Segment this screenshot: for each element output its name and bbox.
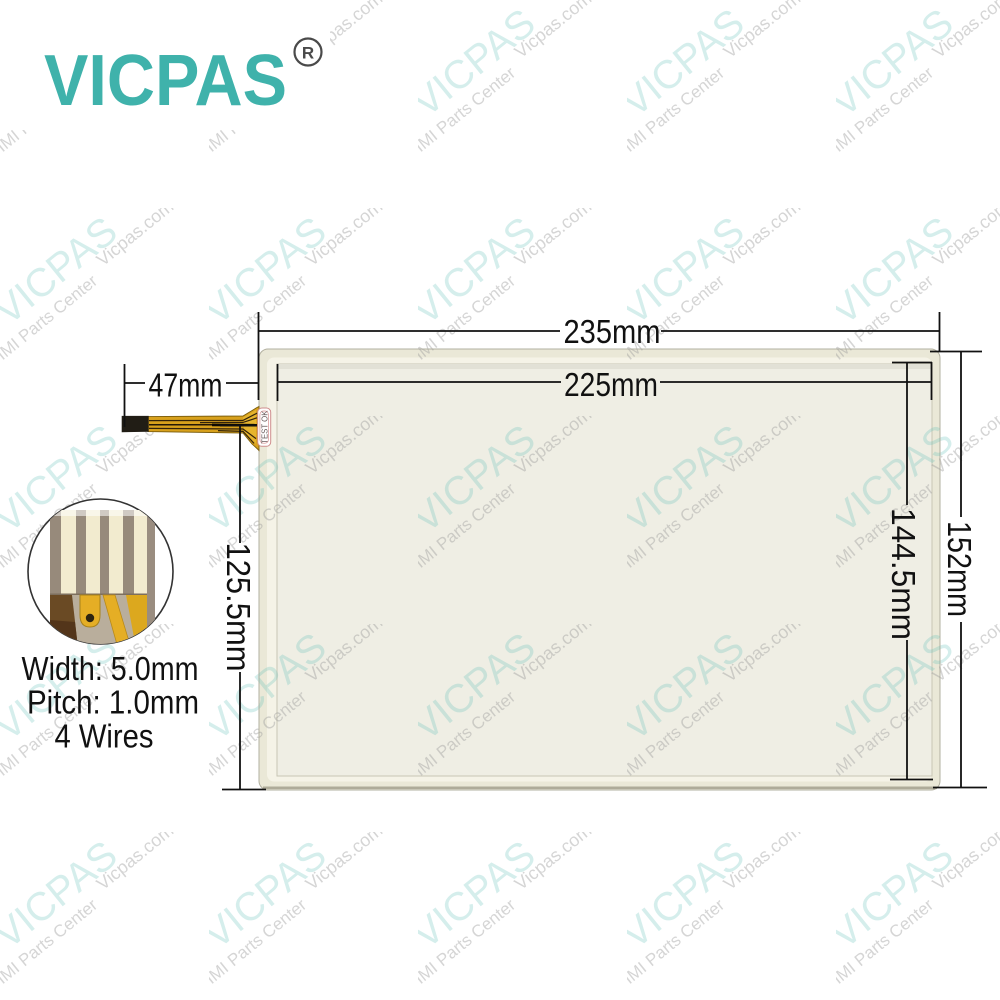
svg-text:4 Wires: 4 Wires: [55, 718, 154, 755]
svg-text:144.5mm: 144.5mm: [885, 508, 922, 640]
svg-text:Pitch: 1.0mm: Pitch: 1.0mm: [27, 684, 199, 721]
svg-text:235mm: 235mm: [564, 313, 661, 350]
svg-text:225mm: 225mm: [564, 366, 658, 403]
svg-text:TEST OK: TEST OK: [261, 410, 270, 444]
svg-text:152mm: 152mm: [941, 521, 978, 617]
svg-text:R: R: [302, 44, 314, 63]
svg-text:Width: 5.0mm: Width: 5.0mm: [22, 650, 199, 687]
svg-text:47mm: 47mm: [149, 367, 223, 404]
svg-text:VICPAS: VICPAS: [44, 41, 287, 121]
svg-text:125.5mm: 125.5mm: [220, 543, 257, 672]
